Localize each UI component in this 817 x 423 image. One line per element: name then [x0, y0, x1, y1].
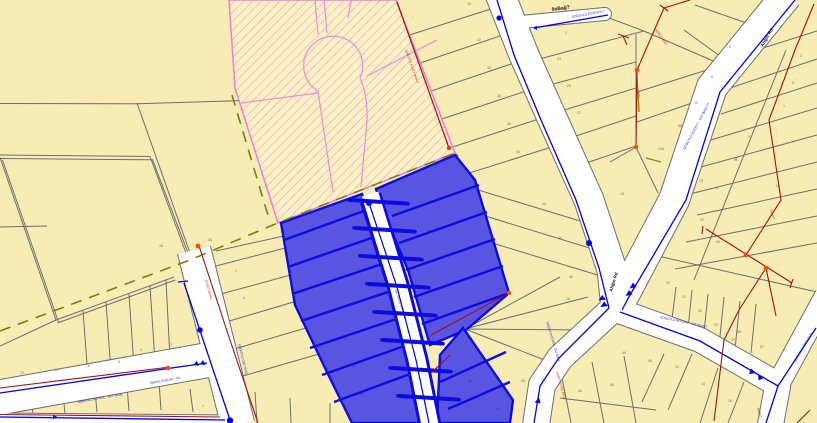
svg-text:7: 7 [783, 105, 785, 109]
svg-text:16: 16 [566, 297, 570, 301]
svg-text:23: 23 [557, 57, 561, 61]
svg-text:15: 15 [699, 179, 703, 183]
svg-text:34: 34 [208, 238, 212, 242]
svg-text:14: 14 [701, 382, 705, 386]
svg-text:4: 4 [744, 20, 746, 24]
svg-text:25: 25 [567, 84, 571, 88]
svg-text:22: 22 [496, 407, 500, 411]
svg-text:42: 42 [700, 218, 704, 222]
svg-text:13: 13 [715, 186, 719, 190]
svg-text:5: 5 [792, 81, 794, 85]
svg-text:42: 42 [542, 202, 546, 206]
svg-text:44: 44 [558, 236, 562, 240]
svg-text:3: 3 [800, 54, 802, 58]
svg-text:10: 10 [55, 368, 59, 372]
svg-text:37: 37 [731, 338, 735, 342]
svg-text:6: 6 [729, 45, 731, 49]
svg-text:SÖĞ?: SÖĞ? [636, 90, 642, 99]
svg-text:28: 28 [521, 379, 525, 383]
svg-text:29: 29 [666, 281, 670, 285]
svg-text:6: 6 [118, 360, 120, 364]
svg-text:44: 44 [716, 240, 720, 244]
svg-text:31: 31 [682, 295, 686, 299]
svg-text:32: 32 [477, 38, 481, 42]
svg-text:13: 13 [360, 392, 364, 396]
svg-text:36: 36 [497, 94, 501, 98]
svg-text:57: 57 [760, 345, 764, 349]
svg-text:10: 10 [776, 184, 780, 188]
svg-text:11: 11 [352, 364, 355, 368]
svg-text:48: 48 [610, 383, 614, 387]
svg-text:10: 10 [452, 312, 456, 316]
svg-text:11: 11 [734, 158, 738, 162]
svg-text:46: 46 [622, 351, 626, 355]
svg-text:33: 33 [698, 309, 702, 313]
svg-text:16: 16 [159, 244, 163, 248]
svg-text:55: 55 [737, 330, 741, 334]
svg-text:35: 35 [714, 323, 718, 327]
svg-text:4: 4 [243, 296, 245, 300]
svg-text:14: 14 [620, 192, 624, 196]
svg-text:20: 20 [468, 379, 472, 383]
svg-text:16: 16 [728, 399, 732, 403]
svg-text:46: 46 [578, 389, 582, 393]
svg-text:10: 10 [694, 101, 698, 105]
svg-text:34: 34 [487, 66, 491, 70]
svg-text:27: 27 [577, 111, 581, 115]
svg-text:46: 46 [569, 275, 573, 279]
svg-text:12A: 12A [658, 147, 665, 151]
svg-text:2: 2 [235, 269, 237, 273]
svg-text:4: 4 [140, 348, 142, 352]
svg-text:40: 40 [516, 150, 520, 154]
svg-text:2: 2 [170, 343, 172, 347]
svg-text:12: 12 [20, 371, 24, 375]
svg-text:9: 9 [748, 135, 750, 139]
svg-text:30: 30 [467, 2, 471, 6]
svg-text:38: 38 [507, 122, 511, 126]
svg-text:8: 8 [88, 364, 90, 368]
svg-text:48: 48 [648, 359, 652, 363]
svg-text:1: 1 [565, 31, 567, 35]
svg-text:1: 1 [202, 404, 204, 408]
svg-text:12: 12 [675, 365, 679, 369]
svg-text:12: 12 [678, 124, 682, 128]
svg-text:8: 8 [711, 75, 713, 79]
